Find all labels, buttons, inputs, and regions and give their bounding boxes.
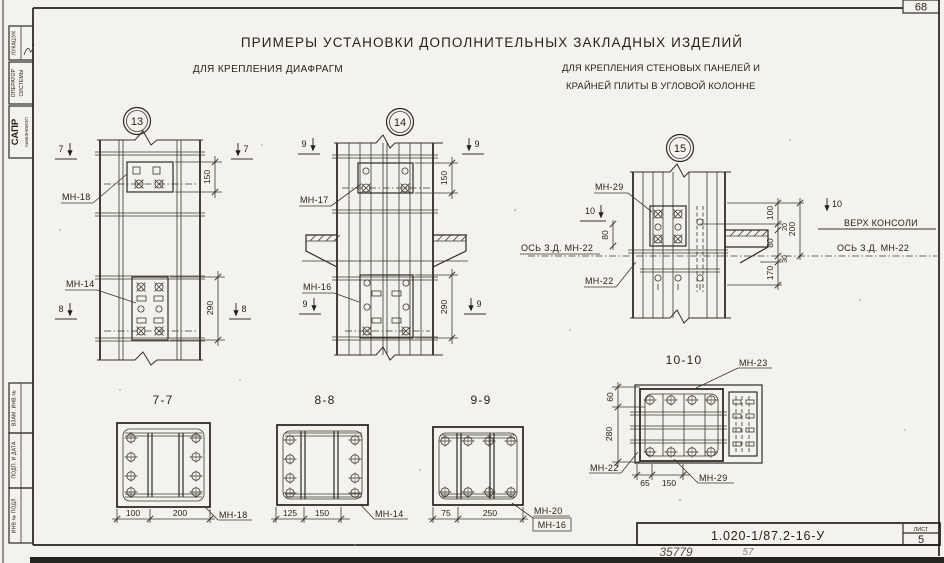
svg-text:150: 150 (439, 171, 449, 185)
svg-text:9: 9 (302, 299, 307, 309)
svg-text:150: 150 (202, 170, 212, 184)
svg-text:9: 9 (301, 139, 306, 149)
section-mark-9-bottom-left: 9 (299, 298, 321, 314)
svg-text:9: 9 (474, 139, 479, 149)
technical-drawing-canvas: 68 ЛУКАШУК ОПЕРАТОР СИСТЕМЫ САПР КиевЗНИ… (0, 0, 944, 563)
svg-text:80: 80 (600, 230, 610, 240)
handwritten-number: 35779 (659, 545, 693, 559)
svg-text:280: 280 (604, 427, 614, 441)
label-mn16-section: МН-16 (538, 520, 567, 530)
svg-text:65: 65 (640, 478, 650, 488)
section-mark-7-left: 7 (55, 143, 77, 159)
section-8-8: 8-8 125 150 МН-14 (271, 393, 408, 523)
label-axis-left: ОСЬ З.Д. МН-22 (521, 243, 593, 253)
section-9-9-title: 9-9 (471, 393, 492, 407)
figure-15-elevation: 15 ОСЬ З.Д. МН-22 10 80 МН-29 МН-22 (520, 135, 937, 324)
label-mn23-section: МН-23 (739, 358, 768, 368)
svg-text:100: 100 (765, 206, 775, 220)
section-7-7-dimensions: 100 200 (112, 508, 215, 523)
section-10-10: 10-10 60 280 65 150 МН-23 МН-22 МН-29 (589, 353, 772, 488)
svg-text:7: 7 (58, 144, 63, 154)
figure-14-elevation: 14 МН-17 МН-16 9 9 (298, 109, 486, 361)
section-mark-9-top-left: 9 (298, 138, 320, 154)
scanned-drawing-sheet: 68 ЛУКАШУК ОПЕРАТОР СИСТЕМЫ САПР КиевЗНИ… (0, 0, 944, 563)
label-mn14: МН-14 (66, 279, 95, 289)
sheet-title: ПРИМЕРЫ УСТАНОВКИ ДОПОЛНИТЕЛЬНЫХ ЗАКЛАДН… (241, 35, 743, 50)
svg-text:250: 250 (483, 508, 497, 518)
section-mark-9-bottom-right: 9 (464, 298, 486, 314)
figure-14-number: 14 (394, 117, 406, 129)
stamp-role-line1: ОПЕРАТОР (11, 68, 17, 97)
subtitle-right-line2: КРАЙНЕЙ ПЛИТЫ В УГЛОВОЙ КОЛОННЕ (566, 80, 755, 92)
headings: ПРИМЕРЫ УСТАНОВКИ ДОПОЛНИТЕЛЬНЫХ ЗАКЛАДН… (193, 35, 760, 92)
label-mn16: МН-16 (303, 282, 332, 292)
document-number: 1.020-1/87.2-16-У (711, 529, 825, 543)
corbel-right (725, 230, 768, 263)
svg-text:200: 200 (787, 222, 797, 236)
label-mn29: МН-29 (595, 182, 624, 192)
section-9-9-dimensions: 75 250 (428, 507, 528, 523)
left-margin-stamps: ЛУКАШУК ОПЕРАТОР СИСТЕМЫ САПР КиевЗНИИЭП… (9, 26, 34, 543)
stamp-vzam: ВЗАМ. ИНВ.№ (12, 390, 18, 426)
scan-edge-bar (30, 557, 944, 563)
page-corner-number: 68 (915, 2, 927, 14)
stamp-author: ЛУКАШУК (12, 31, 18, 56)
dimension-150: 150 (175, 156, 222, 198)
stamp-inv: ИНВ.№ ПОДЛ. (12, 497, 18, 533)
section-mark-10-right: 10 (824, 198, 842, 212)
svg-text:80: 80 (765, 238, 775, 248)
corbel (302, 235, 468, 267)
svg-text:8: 8 (58, 304, 63, 314)
stamp-role-line2: СИСТЕМЫ (19, 69, 25, 96)
dimension-80-left: 80 (600, 220, 616, 250)
label-mn18-section: МН-18 (219, 510, 248, 520)
svg-text:125: 125 (283, 508, 297, 518)
label-axis-right: ОСЬ З.Д. МН-22 (837, 243, 909, 253)
section-mark-7-right: 7 (231, 143, 253, 159)
figure-13-elevation: 13 МН-18 МН-14 7 7 8 (55, 108, 253, 366)
label-mn17: МН-17 (300, 195, 329, 205)
figure-13-number: 13 (131, 116, 143, 128)
dimension-chain-right: 100 20 80 30 170 200 (700, 198, 804, 290)
label-verh-konsoli: ВЕРХ КОНСОЛИ (844, 218, 918, 228)
section-7-7: 7-7 100 200 МН-18 (112, 393, 252, 523)
svg-text:8: 8 (241, 304, 246, 314)
dimension-290: 290 (170, 271, 225, 346)
section-8-8-title: 8-8 (315, 393, 336, 407)
svg-text:10: 10 (832, 199, 842, 209)
svg-text:290: 290 (439, 300, 449, 314)
svg-text:150: 150 (315, 508, 329, 518)
label-mn22-section: МН-22 (590, 463, 619, 473)
section-10-10-title: 10-10 (666, 353, 703, 367)
scan-specks (59, 139, 906, 546)
title-block: 1.020-1/87.2-16-У ЛИСТ 5 35779 57 (637, 523, 940, 559)
label-mn29-section: МН-29 (699, 473, 728, 483)
svg-text:150: 150 (662, 478, 676, 488)
dimension-150: 150 (415, 157, 458, 199)
label-mn20-section: МН-20 (534, 506, 563, 516)
label-mn22: МН-22 (585, 276, 614, 286)
svg-text:100: 100 (126, 508, 140, 518)
label-mn18: МН-18 (62, 192, 91, 202)
sheet-number: 5 (918, 534, 924, 546)
svg-text:7: 7 (243, 144, 248, 154)
stamp-podp: ПОДП. И ДАТА (12, 441, 18, 479)
subtitle-right-line1: ДЛЯ КРЕПЛЕНИЯ СТЕНОВЫХ ПАНЕЛЕЙ И (562, 62, 760, 74)
sheet-frame: 68 (3, 0, 944, 563)
svg-text:9: 9 (476, 299, 481, 309)
svg-text:60: 60 (605, 392, 615, 402)
figure-15-number: 15 (674, 143, 686, 155)
section-10-10-dimensions-left: 60 280 (604, 382, 645, 467)
section-mark-9-top-right: 9 (462, 138, 484, 154)
section-mark-8-left: 8 (55, 303, 77, 319)
svg-text:30: 30 (782, 255, 789, 263)
svg-text:170: 170 (765, 266, 775, 280)
section-9-9: 9-9 75 250 МН-20 МН-16 (428, 393, 571, 531)
stamp-org-sub: КиевЗНИИЭП (24, 117, 29, 147)
section-mark-8-right: 8 (229, 303, 251, 319)
section-10-10-dimensions-bottom: 65 150 (632, 464, 690, 488)
svg-text:10: 10 (585, 206, 595, 216)
svg-text:75: 75 (441, 508, 451, 518)
section-8-8-dimensions: 125 150 (271, 507, 350, 523)
svg-text:200: 200 (173, 508, 187, 518)
subtitle-left: ДЛЯ КРЕПЛЕНИЯ ДИАФРАГМ (193, 64, 343, 75)
section-mark-10-left: 10 (580, 205, 606, 221)
handwritten-mark: 57 (742, 547, 754, 558)
section-7-7-title: 7-7 (153, 393, 174, 407)
svg-text:290: 290 (205, 301, 215, 315)
stamp-org: САПР (10, 118, 21, 145)
label-mn14-section: МН-14 (375, 509, 404, 519)
sheet-label: ЛИСТ (914, 527, 929, 533)
